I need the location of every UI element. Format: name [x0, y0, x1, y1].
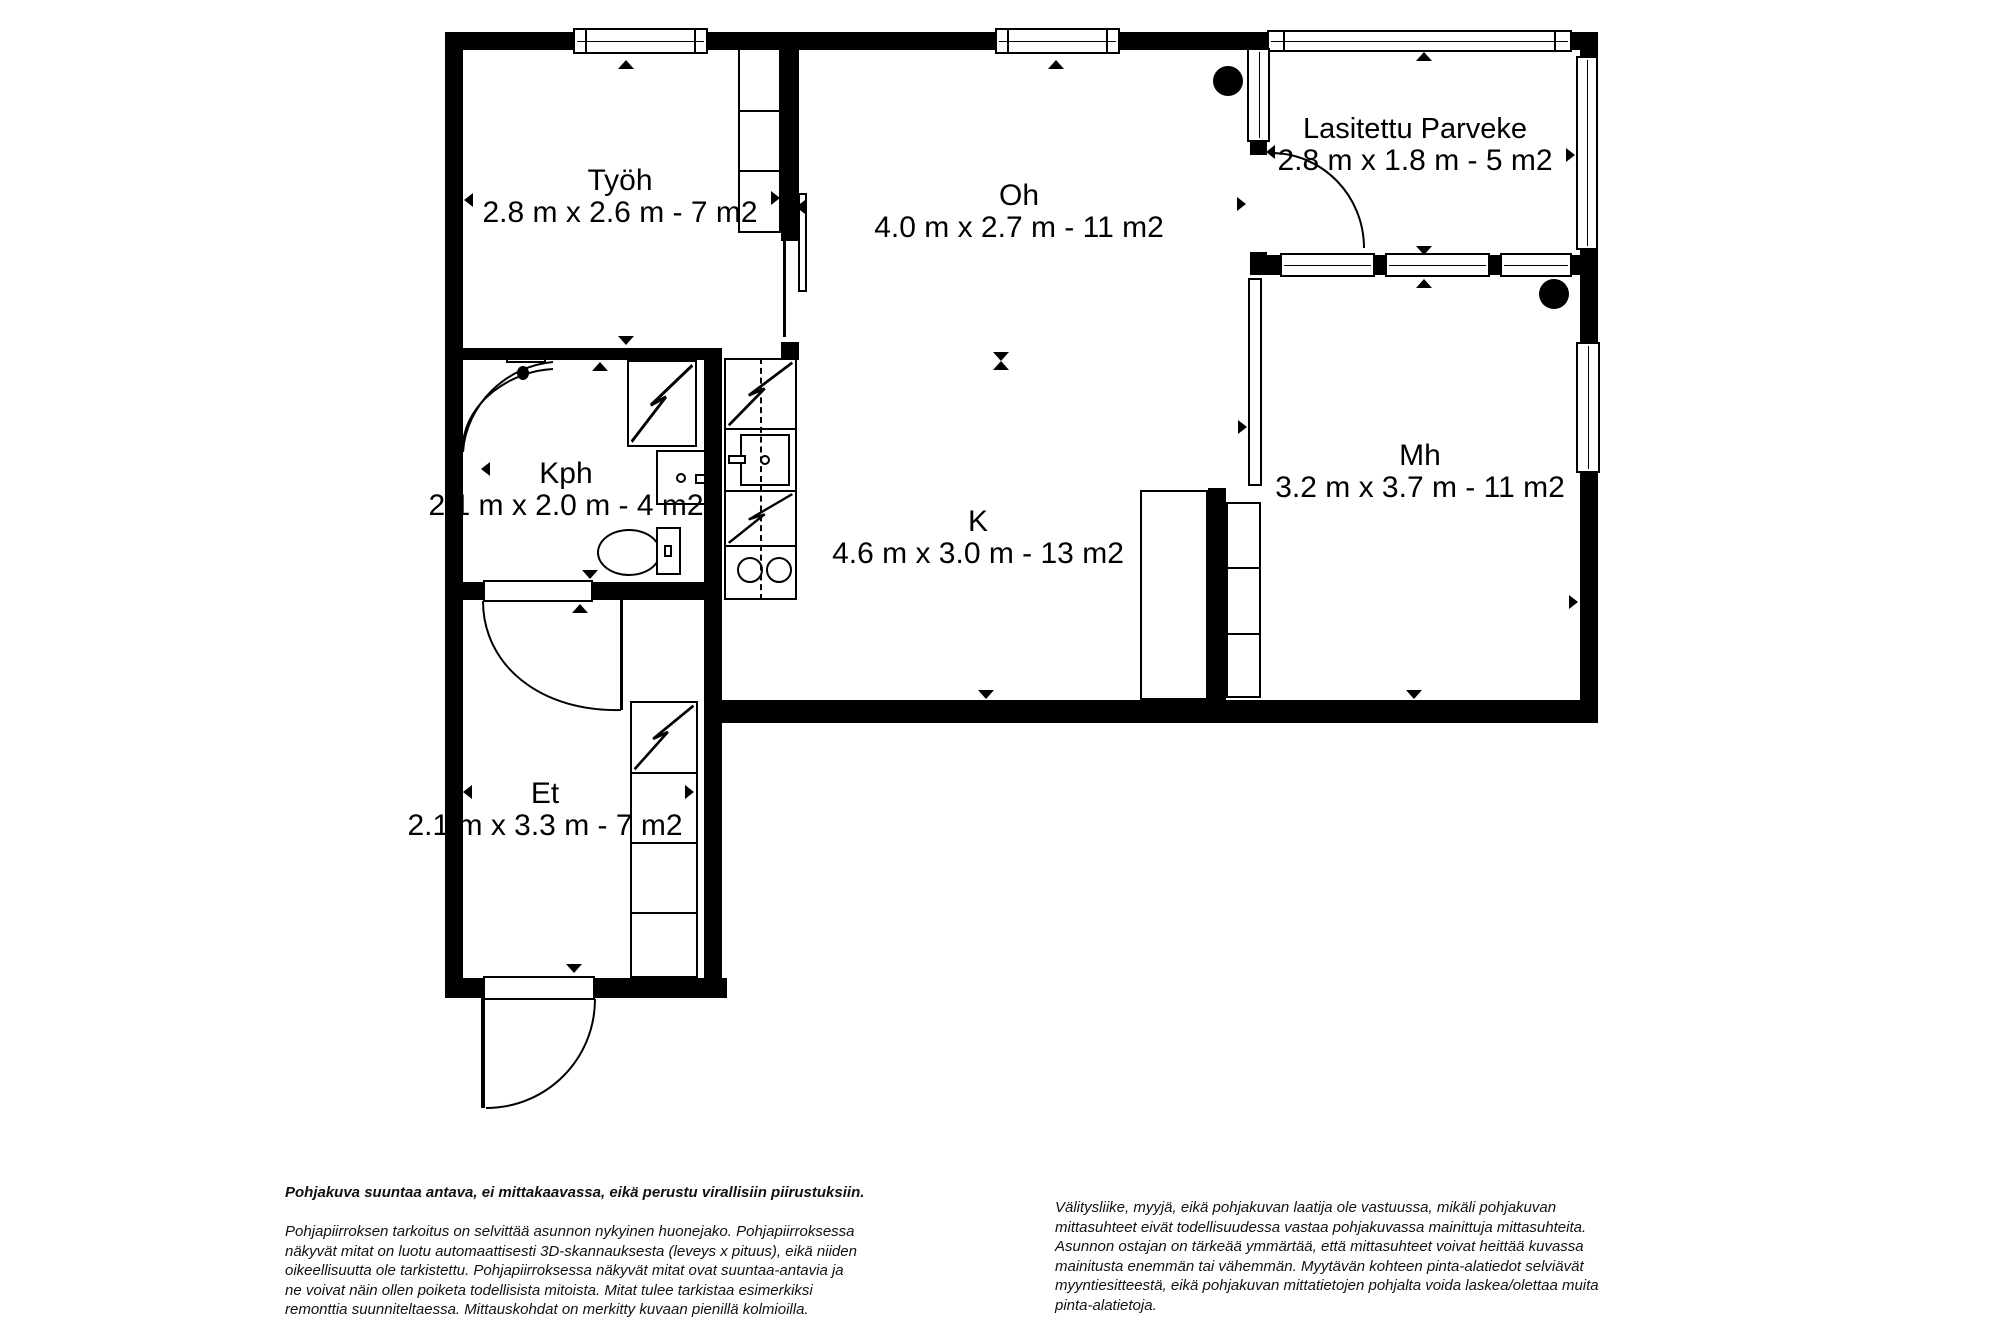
measure-marker	[978, 690, 994, 699]
disclaimer-line: mainitusta enemmän tai vähemmän. Myytävä…	[1055, 1257, 1599, 1277]
bathroom-sink-drain	[676, 473, 686, 483]
room-name: Työh	[440, 165, 800, 197]
measure-marker	[1416, 246, 1432, 255]
measure-marker	[463, 785, 472, 799]
room-dims: 2.1 m x 2.0 m - 4 m2	[386, 490, 746, 522]
measure-marker	[582, 570, 598, 579]
window-balcony-bottom-2	[1385, 253, 1490, 277]
measure-marker-hourglass-bottom	[993, 361, 1009, 370]
doorframe-kph	[483, 580, 593, 602]
door-leaf-kph	[620, 600, 623, 710]
window-balcony-bottom-1	[1280, 253, 1375, 277]
room-label-mh: Mh 3.2 m x 3.7 m - 11 m2	[1240, 440, 1600, 504]
room-label-et: Et 2.1 m x 3.3 m - 7 m2	[365, 778, 725, 842]
room-label-k: K 4.6 m x 3.0 m - 13 m2	[798, 506, 1158, 570]
wall-balcony-left-stub	[1250, 140, 1267, 155]
measure-marker	[1416, 52, 1432, 61]
disclaimer-line: mittasuhteet eivät todellisuudessa vasta…	[1055, 1218, 1599, 1238]
room-label-tyoh: Työh 2.8 m x 2.6 m - 7 m2	[440, 165, 800, 229]
window-tyoh	[573, 28, 708, 54]
room-dims: 4.0 m x 2.7 m - 11 m2	[839, 212, 1199, 244]
disclaimer-line: pinta-alatietoja.	[1055, 1296, 1599, 1316]
kitchen-faucet	[728, 455, 746, 464]
kitchen-counter-dash-line	[760, 358, 762, 600]
room-name: Mh	[1240, 440, 1600, 472]
measure-marker	[796, 200, 805, 214]
wall-left	[445, 32, 463, 998]
doorframe-entrance	[483, 976, 595, 1000]
room-dims: 2.1 m x 3.3 m - 7 m2	[365, 810, 725, 842]
measure-marker	[481, 462, 490, 476]
measure-marker	[618, 336, 634, 345]
room-name: K	[798, 506, 1158, 538]
room-label-oh: Oh 4.0 m x 2.7 m - 11 m2	[839, 180, 1199, 244]
room-name: Lasitettu Parveke	[1235, 113, 1595, 145]
room-name: Et	[365, 778, 725, 810]
measure-marker	[464, 193, 473, 207]
column-dot-oh	[1213, 66, 1243, 96]
measure-marker	[685, 785, 694, 799]
toilet-flush-button	[664, 545, 672, 557]
measure-marker	[618, 60, 634, 69]
wall-tyoh-oh-stub	[781, 342, 799, 360]
room-name: Oh	[839, 180, 1199, 212]
window-mh	[1576, 342, 1600, 473]
disclaimer-bold-text: Pohjakuva suuntaa antava, ei mittakaavas…	[285, 1183, 864, 1203]
disclaimer-bold-line: Pohjakuva suuntaa antava, ei mittakaavas…	[285, 1183, 864, 1203]
disclaimer-line: myyntiesitteestä, eikä pohjakuvan mittat…	[1055, 1276, 1599, 1296]
measure-marker	[1569, 595, 1578, 609]
room-name: Kph	[386, 458, 746, 490]
measure-marker	[1238, 420, 1247, 434]
wall-kph-top	[463, 348, 722, 360]
wall-bottom-main	[704, 700, 1598, 723]
measure-marker	[1406, 690, 1422, 699]
measure-marker	[1416, 279, 1432, 288]
window-balcony-top	[1267, 30, 1572, 52]
disclaimer-line: oikeellisuutta ole tarkistettu. Pohjapii…	[285, 1261, 857, 1281]
measure-marker	[572, 604, 588, 613]
disclaimer-line: Asunnon ostajan on tärkeää ymmärtää, ett…	[1055, 1237, 1599, 1257]
wardrobe-et-top-section	[632, 703, 696, 772]
measure-marker	[592, 362, 608, 371]
measure-marker	[705, 468, 714, 482]
measure-marker	[771, 191, 780, 205]
wall-tyoh-oh-jamb	[783, 241, 786, 337]
disclaimer-line: näkyvät mitat on luotu automaattisesti 3…	[285, 1242, 857, 1262]
measure-marker	[1048, 60, 1064, 69]
window-balcony-bottom-3	[1500, 253, 1572, 277]
disclaimer-line: remonttia suunniteltaessa. Mittauskohdat…	[285, 1300, 857, 1320]
shower-drop-icon	[517, 366, 529, 380]
disclaimer-line: ne voivat näin ollen poiketa todellisist…	[285, 1281, 857, 1301]
measure-marker	[1218, 590, 1227, 604]
toilet-bowl	[597, 529, 661, 576]
floorplan-canvas: Työh 2.8 m x 2.6 m - 7 m2 Oh 4.0 m x 2.7…	[0, 0, 2000, 1333]
door-leaf-mh	[1248, 278, 1262, 486]
column-dot-mh	[1539, 279, 1569, 309]
room-dims: 2.8 m x 2.6 m - 7 m2	[440, 197, 800, 229]
stove-burner	[766, 557, 792, 583]
washing-machine	[627, 360, 697, 447]
measure-marker	[1266, 145, 1275, 159]
disclaimer-line: Pohjapiirroksen tarkoitus on selvittää a…	[285, 1222, 857, 1242]
disclaimer-right-paragraph: Välitysliike, myyjä, eikä pohjakuvan laa…	[1055, 1198, 1599, 1315]
disclaimer-line: Välitysliike, myyjä, eikä pohjakuvan laa…	[1055, 1198, 1599, 1218]
measure-marker	[1237, 197, 1246, 211]
measure-marker-hourglass-top	[993, 352, 1009, 361]
room-dims: 3.2 m x 3.7 m - 11 m2	[1240, 472, 1600, 504]
room-dims: 4.6 m x 3.0 m - 13 m2	[798, 538, 1158, 570]
room-label-parveke: Lasitettu Parveke 2.8 m x 1.8 m - 5 m2	[1235, 113, 1595, 177]
window-oh	[995, 28, 1120, 54]
closet-mh	[1226, 502, 1261, 698]
window-balcony-left	[1247, 48, 1270, 142]
room-label-kph: Kph 2.1 m x 2.0 m - 4 m2	[386, 458, 746, 522]
measure-marker	[1566, 148, 1575, 162]
window-balcony-right	[1576, 56, 1598, 250]
disclaimer-left-paragraph: Pohjapiirroksen tarkoitus on selvittää a…	[285, 1222, 857, 1320]
door-leaf-entrance	[481, 998, 485, 1108]
measure-marker	[566, 964, 582, 973]
room-dims: 2.8 m x 1.8 m - 5 m2	[1235, 145, 1595, 177]
wall-mid-vertical	[704, 348, 722, 998]
